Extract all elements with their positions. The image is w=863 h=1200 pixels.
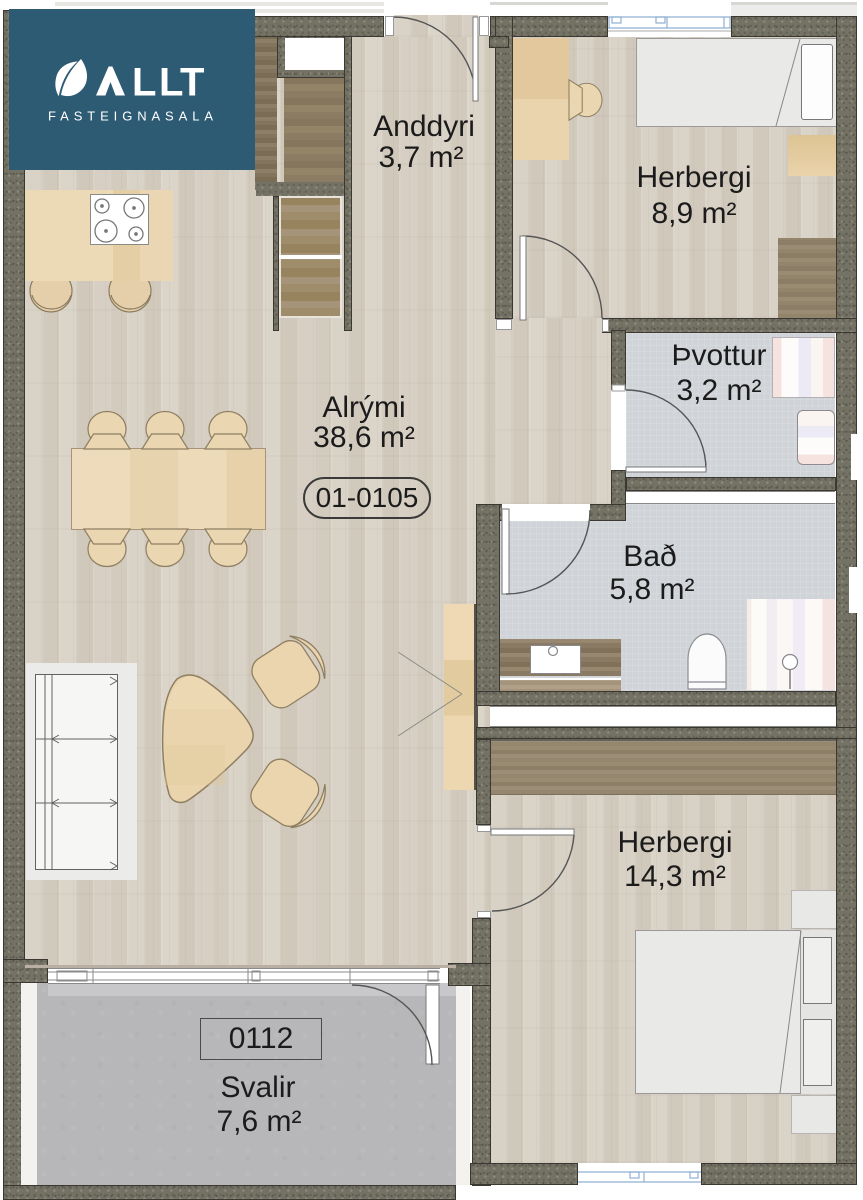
svg-text:T: T bbox=[180, 61, 204, 105]
svg-text:FASTEIGNASALA: FASTEIGNASALA bbox=[48, 109, 218, 124]
svg-text:L: L bbox=[132, 61, 156, 105]
